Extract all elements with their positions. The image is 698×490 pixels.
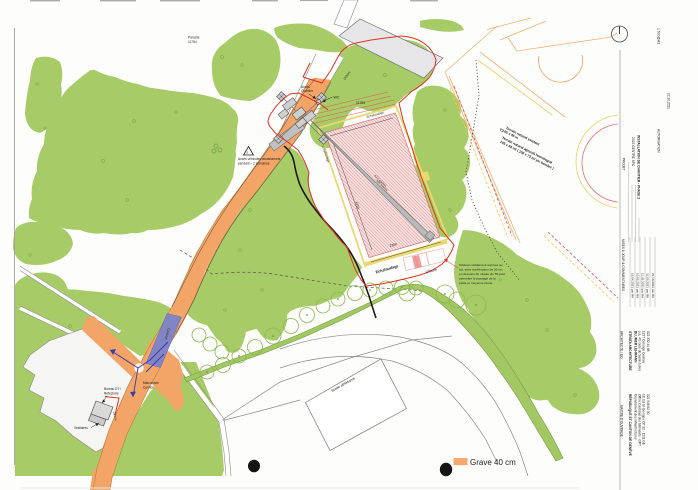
svg-text:Chantier: Chantier	[301, 89, 314, 93]
svg-text:PROJET: PROJET	[622, 158, 626, 171]
svg-text:Grave 40 cm: Grave 40 cm	[470, 458, 516, 467]
svg-text:31.05.2021 par RH: 31.05.2021 par RH	[646, 273, 650, 298]
svg-text:19.04.2021 par RH: 19.04.2021 par RH	[631, 273, 635, 298]
svg-text:BLUMER LEHMANN: BLUMER LEHMANN	[634, 331, 638, 363]
svg-text:21.10.2021 par RH: 21.10.2021 par RH	[651, 273, 655, 298]
svg-text:Accès véhicules occasionnels: Accès véhicules occasionnels	[238, 157, 281, 161]
svg-text:Parcelle: Parcelle	[188, 36, 200, 40]
svg-text:1227 Carouge Genève: 1227 Carouge Genève	[642, 331, 646, 363]
svg-text:11784: 11784	[356, 101, 365, 105]
svg-text:Camion: Camion	[143, 386, 154, 390]
svg-text:MISES À JOUR & COMMENTAIRES: MISES À JOUR & COMMENTAIRES	[621, 239, 625, 291]
svg-text:petite et moyenne faune.: petite et moyenne faune.	[459, 281, 493, 285]
svg-text:Réfectoire: Réfectoire	[104, 392, 119, 396]
svg-text:WC: WC	[334, 96, 340, 100]
svg-text:en dessous du niveau du TN pou: en dessous du niveau du TN pour	[459, 272, 505, 276]
svg-text:pendant ~ 2 semaines: pendant ~ 2 semaines	[238, 162, 270, 166]
svg-text:Bureau DT /: Bureau DT /	[104, 387, 121, 391]
svg-text:STRATA ARCHITECTURE: STRATA ARCHITECTURE	[628, 331, 632, 371]
svg-text:11.05.2021 par RH: 11.05.2021 par RH	[641, 273, 645, 298]
svg-text:MAITRE D'OUVRAGE: MAITRE D'OUVRAGE	[620, 405, 624, 437]
svg-text:!: !	[246, 150, 247, 155]
svg-text:RÉPUBLIQUE ET CANTON DE GENÈVE: RÉPUBLIQUE ET CANTON DE GENÈVE	[628, 394, 633, 457]
svg-text:Département des infrastructure: Département des infrastructures	[634, 394, 638, 440]
svg-text:p.a. 40 route de Saint-Julien: p.a. 40 route de Saint-Julien	[638, 331, 642, 371]
svg-text:22.10.2021: 22.10.2021	[667, 93, 671, 109]
svg-text:Office Cantonal des bâtiments: Office Cantonal des bâtiments - DRT	[638, 394, 642, 446]
svg-text:Manoeuvre: Manoeuvre	[143, 381, 159, 385]
svg-text:2015 CENTRE SFC: 2015 CENTRE SFC	[631, 137, 635, 167]
svg-text:ARCHITECTE / EG: ARCHITECTE / EG	[620, 331, 624, 359]
svg-text:1:500@A3: 1:500@A3	[657, 28, 661, 44]
svg-text:AUTORISATION: AUTORISATION	[657, 129, 661, 153]
svg-text:11784: 11784	[188, 40, 197, 44]
svg-text:permettre le passage de la: permettre le passage de la	[459, 277, 496, 281]
svg-text:022 332 44 88: 022 332 44 88	[646, 331, 650, 352]
svg-text:022 546 62 00: 022 546 62 00	[646, 394, 650, 415]
svg-text:INSTALLATION DE CHANTIER - PHA: INSTALLATION DE CHANTIER - PHASE 2	[637, 135, 641, 199]
svg-text:18, bd St-Georges CP 32 - 1211: 18, bd St-Georges CP 32 - 1211 GE	[642, 394, 646, 445]
svg-text:Clôtures solidement ancrées au: Clôtures solidement ancrées au	[459, 263, 503, 267]
svg-text:sol, avec surélévation de 20 c: sol, avec surélévation de 20 cm	[459, 268, 503, 272]
svg-text:Vestiaires: Vestiaires	[74, 426, 88, 430]
svg-text:10.05.2021 par RH: 10.05.2021 par RH	[636, 273, 640, 298]
